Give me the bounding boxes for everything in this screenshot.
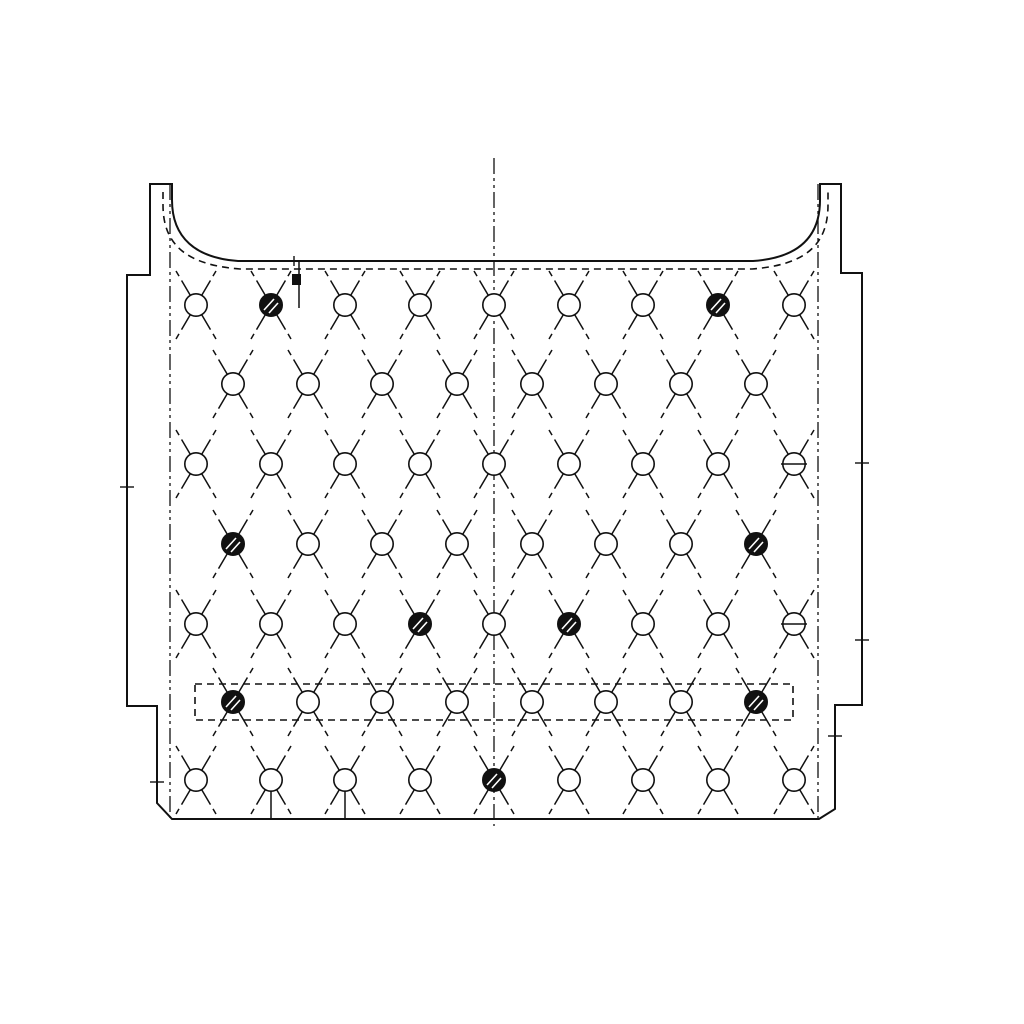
hole-mark-open — [437, 350, 477, 418]
hole-mark-open — [288, 668, 328, 736]
hole-mark-open — [774, 271, 814, 339]
hole-mark-open — [586, 510, 626, 578]
hole-circle — [185, 613, 207, 635]
hole-mark-open — [362, 668, 402, 736]
hole-mark-slotted — [774, 430, 814, 498]
hole-circle — [334, 613, 356, 635]
hole-circle — [409, 453, 431, 475]
hole-circle — [670, 533, 692, 555]
hole-circle — [558, 613, 580, 635]
hole-circle — [595, 533, 617, 555]
flag-marker-flag — [292, 274, 301, 285]
hole-circle — [783, 769, 805, 791]
hole-mark-open — [176, 746, 216, 814]
hole-circle — [222, 691, 244, 713]
hole-mark-open — [325, 590, 365, 658]
hole-circle — [632, 613, 654, 635]
hole-mark-open — [661, 668, 701, 736]
hole-circle — [297, 533, 319, 555]
hole-circle — [745, 373, 767, 395]
hole-circle — [409, 769, 431, 791]
hole-circle — [446, 373, 468, 395]
hole-mark-open — [288, 510, 328, 578]
hole-mark-open — [362, 510, 402, 578]
hole-circle — [558, 769, 580, 791]
hole-mark-slotted — [774, 590, 814, 658]
centerlines-group — [170, 158, 818, 826]
hole-circle — [483, 453, 505, 475]
hole-mark-filled — [213, 668, 253, 736]
hole-circle — [260, 453, 282, 475]
hole-mark-open — [512, 668, 552, 736]
hole-mark-open — [512, 350, 552, 418]
hole-mark-open — [698, 590, 738, 658]
hole-circle — [409, 294, 431, 316]
hole-circle — [371, 533, 393, 555]
hole-mark-open — [661, 510, 701, 578]
hole-mark-open — [623, 430, 663, 498]
hole-mark-filled — [400, 590, 440, 658]
hole-circle — [670, 691, 692, 713]
hole-mark-open — [325, 430, 365, 498]
hole-circle — [483, 294, 505, 316]
hole-mark-open — [176, 590, 216, 658]
hole-circle — [558, 294, 580, 316]
hole-circle — [632, 453, 654, 475]
hole-circle — [446, 533, 468, 555]
hole-circle — [521, 373, 543, 395]
hole-mark-open — [698, 430, 738, 498]
hole-circle — [521, 533, 543, 555]
hole-circle — [260, 613, 282, 635]
hole-circle — [745, 691, 767, 713]
hole-mark-open — [400, 430, 440, 498]
hole-mark-filled — [549, 590, 589, 658]
hole-mark-open — [251, 430, 291, 498]
technical-drawing-page — [0, 0, 1024, 1024]
hole-circle — [334, 294, 356, 316]
hole-circle — [483, 769, 505, 791]
panel-hole-layout-drawing — [0, 0, 1024, 1024]
hole-circle — [595, 373, 617, 395]
hole-circle — [185, 769, 207, 791]
hole-mark-open — [176, 271, 216, 339]
hole-circle — [707, 294, 729, 316]
hole-mark-open — [549, 430, 589, 498]
hole-circle — [707, 453, 729, 475]
hole-circle — [297, 691, 319, 713]
hole-mark-filled — [213, 510, 253, 578]
hole-circle — [260, 769, 282, 791]
hole-mark-open — [549, 271, 589, 339]
hole-mark-open — [586, 350, 626, 418]
hole-circle — [334, 769, 356, 791]
hole-circle — [297, 373, 319, 395]
hole-mark-open — [549, 746, 589, 814]
hole-mark-open — [437, 510, 477, 578]
hole-mark-filled — [698, 271, 738, 339]
hole-mark-filled — [736, 510, 776, 578]
hole-circle — [632, 769, 654, 791]
hole-mark-open — [437, 668, 477, 736]
hole-circle — [409, 613, 431, 635]
hole-circle — [334, 453, 356, 475]
hole-mark-filled — [251, 271, 291, 339]
hole-mark-open — [400, 746, 440, 814]
hole-circle — [371, 373, 393, 395]
hole-circle — [558, 453, 580, 475]
hole-mark-open — [325, 271, 365, 339]
hole-mark-open — [623, 746, 663, 814]
hole-circle — [707, 613, 729, 635]
hole-circle — [222, 533, 244, 555]
hole-mark-open — [213, 350, 253, 418]
hole-mark-open — [251, 590, 291, 658]
hole-circle — [595, 691, 617, 713]
hole-circle — [185, 294, 207, 316]
hole-circle — [185, 453, 207, 475]
hole-mark-open — [774, 746, 814, 814]
hole-circle — [483, 613, 505, 635]
hole-circle — [670, 373, 692, 395]
hole-circle — [446, 691, 468, 713]
hole-symbols-group — [176, 271, 814, 814]
hole-mark-open — [400, 271, 440, 339]
hole-circle — [783, 294, 805, 316]
hole-circle — [260, 294, 282, 316]
hole-circle — [222, 373, 244, 395]
hole-circle — [707, 769, 729, 791]
hole-mark-open — [512, 510, 552, 578]
hole-mark-open — [623, 590, 663, 658]
hole-mark-open — [362, 350, 402, 418]
hole-circle — [632, 294, 654, 316]
hole-mark-open — [623, 271, 663, 339]
hole-mark-filled — [736, 668, 776, 736]
hole-mark-open — [288, 350, 328, 418]
hole-circle — [745, 533, 767, 555]
hole-mark-open — [661, 350, 701, 418]
hole-circle — [521, 691, 543, 713]
hole-mark-open — [698, 746, 738, 814]
hole-circle — [371, 691, 393, 713]
hole-mark-open — [736, 350, 776, 418]
hidden-edge-line — [163, 192, 828, 269]
hole-mark-open — [586, 668, 626, 736]
hole-mark-open — [176, 430, 216, 498]
